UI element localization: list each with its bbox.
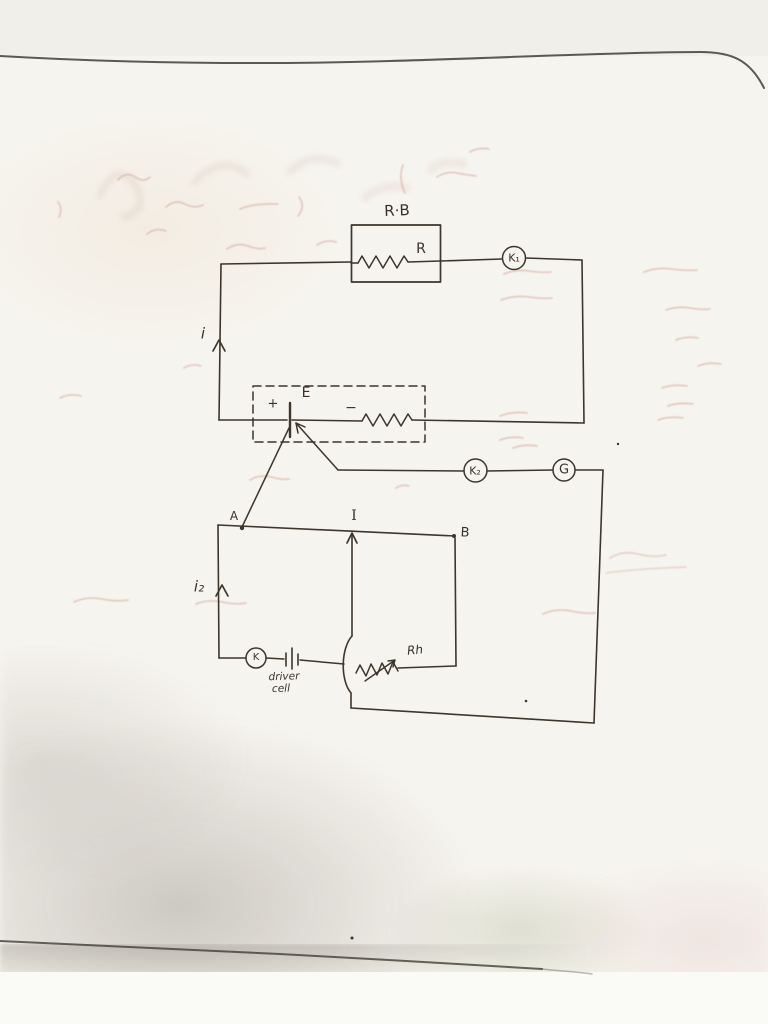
wire-cell-mid [292, 420, 362, 421]
ink-speck [525, 700, 528, 703]
driver-cell-label-line1: driver [268, 671, 299, 683]
resistor-label: R [416, 242, 426, 256]
jockey-point-label: I [351, 509, 357, 523]
wire-in-box-right [408, 261, 440, 262]
ink-speck [351, 937, 354, 940]
circuit-diagram [0, 0, 768, 1024]
resistance-box [352, 225, 441, 282]
wire-after-key1 [526, 258, 582, 260]
terminal-a-label: A [230, 510, 238, 522]
wire-potentiometer-right [455, 538, 456, 666]
wire-to-key1 [441, 259, 503, 261]
cell-enclosure-dashed-box [253, 386, 425, 442]
wire-top-loop-right [582, 260, 584, 423]
wire-cell-to-rheostat [300, 660, 344, 664]
current-i-label: i [201, 327, 205, 342]
rheostat-arrow [365, 660, 395, 681]
galvanometer-label: G [559, 464, 569, 477]
terminal-A-dot [240, 526, 244, 530]
potentiometer-wire-AB [218, 525, 455, 536]
internal-resistance-zigzag [362, 414, 412, 426]
wire-cell-to-A [242, 428, 289, 527]
cell-plus-label: + [268, 398, 279, 411]
wire-cell-to-key2 [296, 423, 338, 470]
wire-cell-right [412, 420, 584, 423]
page-bottom-edge [0, 941, 542, 969]
page-top-edge [0, 52, 764, 88]
resistance-box-title: R·B [384, 203, 410, 219]
wire-galvanometer-return [351, 708, 594, 723]
key-label: K [253, 653, 260, 663]
key1-label: K₁ [508, 253, 520, 264]
driver-cell-label-line2: cell [272, 683, 290, 694]
resistor-R-zigzag [358, 256, 408, 268]
wire-key-to-cell [266, 658, 284, 659]
wire-rheostat-to-B [398, 666, 456, 668]
current-i-arrow [213, 340, 225, 351]
page-bottom-edge-fade [542, 969, 592, 974]
current-i2-label: i₂ [194, 580, 204, 595]
rheostat-zigzag [356, 662, 398, 676]
cell-minus-label: − [345, 401, 357, 415]
wire-key2-to-galvanometer [487, 470, 553, 471]
key2-label: K₂ [469, 466, 481, 477]
wire-to-key2 [338, 470, 464, 471]
wire-galvanometer-right-vertical [594, 470, 603, 723]
terminal-b-label: B [460, 526, 470, 539]
cell-emf-label: E [302, 386, 311, 400]
wire-top-left [221, 262, 351, 264]
scanned-notebook-page: R·B R K₁ i + E − K₂ G A I B i₂ K driver … [0, 0, 768, 1024]
rheostat-label: Rh [406, 643, 423, 657]
ink-speck [617, 443, 619, 445]
